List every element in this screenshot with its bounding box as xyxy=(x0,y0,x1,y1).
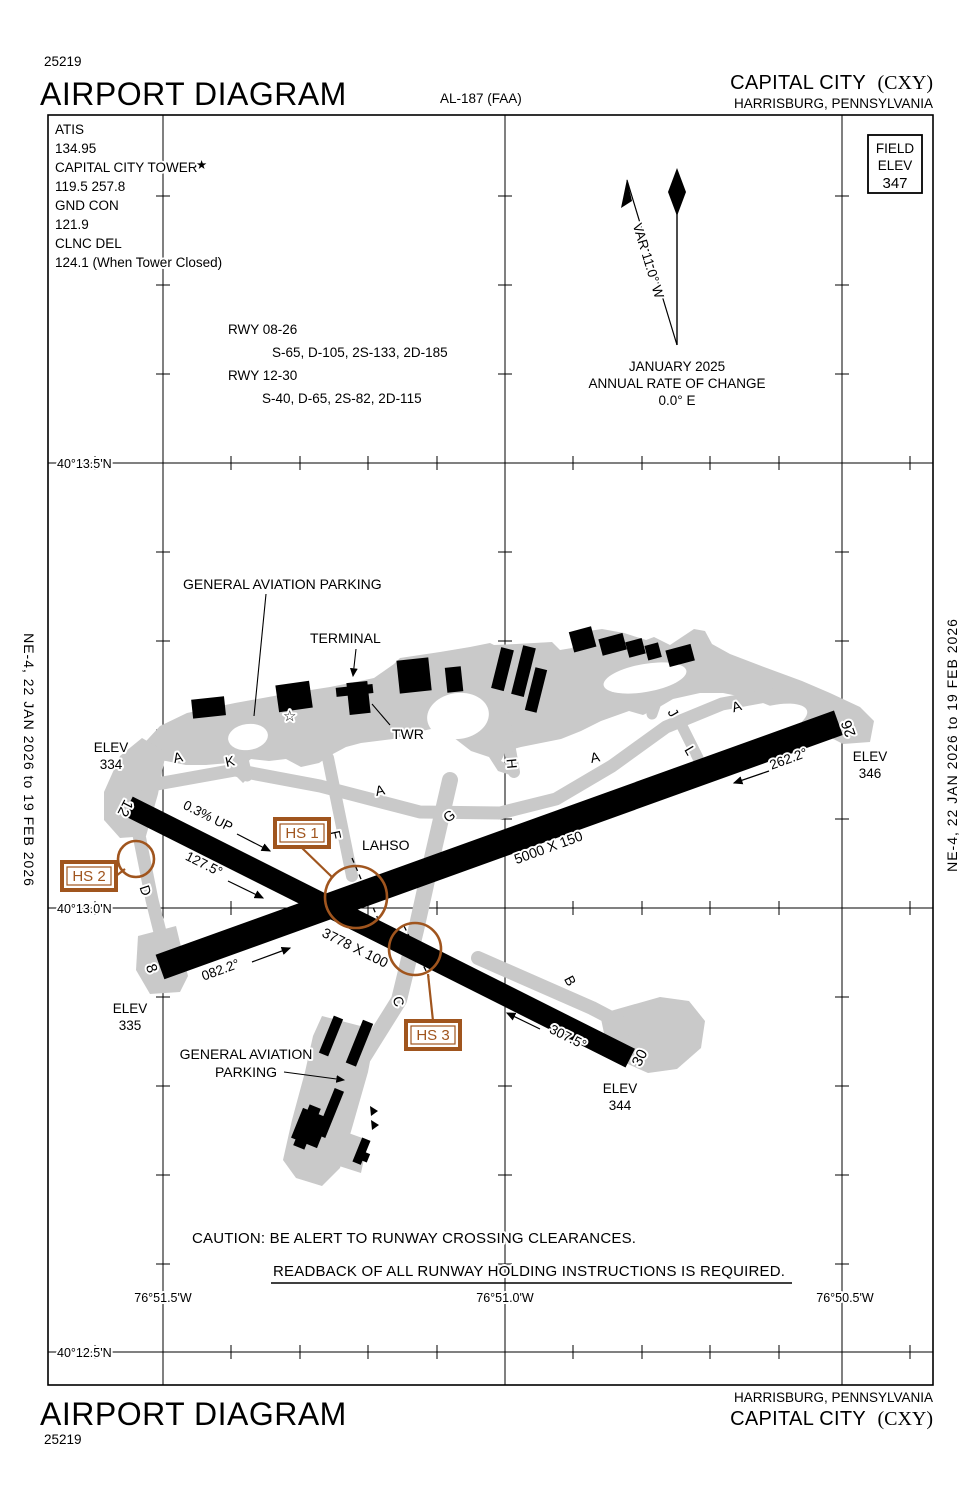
footer-airport-code: (CXY) xyxy=(877,1408,933,1430)
tower-frequencies: 119.5 257.8 xyxy=(55,179,125,194)
margin-note-left: NE-4, 22 JAN 2026 to 19 FEB 2026 xyxy=(21,633,37,887)
tower-star-icon: ★ xyxy=(196,158,207,172)
margin-note-right: NE-4, 22 JAN 2026 to 19 FEB 2026 xyxy=(944,618,960,872)
footer-page-code: 25219 xyxy=(44,1432,82,1447)
runway-data-block: RWY 08-26 S-65, D-105, 2S-133, 2D-185 RW… xyxy=(228,322,448,406)
terminal-arrow xyxy=(353,649,356,676)
longitude-label-1: 76°51.5'W xyxy=(134,1291,192,1305)
small-aircraft-icon xyxy=(371,1120,379,1130)
airport-diagram-chart: 25219 AIRPORT DIAGRAM AL-187 (FAA) CAPIT… xyxy=(0,0,978,1500)
airport-city: HARRISBURG, PENNSYLVANIA xyxy=(734,96,933,111)
elev-30-value: 344 xyxy=(609,1098,632,1113)
caution-line2: READBACK OF ALL RUNWAY HOLDING INSTRUCTI… xyxy=(273,1263,785,1280)
tower-label: CAPITAL CITY TOWER xyxy=(55,160,198,175)
field-elev-line1: FIELD xyxy=(876,141,915,156)
chart-id: AL-187 (FAA) xyxy=(440,91,522,106)
taxiway-a-label: A xyxy=(374,781,387,799)
taxiway-b-label: B xyxy=(561,973,580,989)
elev-8-label: ELEV xyxy=(113,1001,148,1016)
building xyxy=(396,657,431,693)
beacon-star-icon: ☆ xyxy=(283,708,296,725)
atis-frequency: 134.95 xyxy=(55,141,96,156)
rwy-1230-strength: S-40, D-65, 2S-82, 2D-115 xyxy=(262,391,422,406)
rwy-slope-arrow xyxy=(237,834,270,851)
page-title: AIRPORT DIAGRAM xyxy=(40,76,347,112)
terminal-label: TERMINAL xyxy=(310,630,381,646)
latitude-label-3: 40°12.5'N xyxy=(57,1346,112,1360)
building xyxy=(191,696,226,718)
annual-rate-label: ANNUAL RATE OF CHANGE xyxy=(588,376,765,391)
elev-8-value: 335 xyxy=(119,1018,142,1033)
rwy-0826-label: RWY 08-26 xyxy=(228,322,297,337)
longitude-label-3: 76°50.5'W xyxy=(816,1291,874,1305)
ga-parking-top-leader xyxy=(254,594,266,716)
airport-name: CAPITAL CITY xyxy=(730,72,866,94)
taxiway-h-label: H xyxy=(504,758,521,769)
rwy-0826-strength: S-65, D-105, 2S-133, 2D-185 xyxy=(272,345,448,360)
field-elev-value: 347 xyxy=(882,175,907,192)
ground-frequency: 121.9 xyxy=(55,217,89,232)
building xyxy=(445,666,464,693)
twr-label: TWR xyxy=(392,726,424,742)
footer-title: AIRPORT DIAGRAM xyxy=(40,1396,347,1432)
footer-city: HARRISBURG, PENNSYLVANIA xyxy=(734,1390,933,1405)
rwy-08-heading-arrow xyxy=(252,948,290,962)
longitude-label-2: 76°51.0'W xyxy=(476,1291,534,1305)
hot-spot-1-label: HS 1 xyxy=(285,825,318,842)
variation-month: JANUARY 2025 xyxy=(629,359,725,374)
taxiway-f-path xyxy=(328,758,352,876)
chart-page-code: 25219 xyxy=(44,54,82,69)
clearance-label: CLNC DEL xyxy=(55,236,122,251)
rwy-1230-label: RWY 12-30 xyxy=(228,368,297,383)
field-elev-line2: ELEV xyxy=(878,158,913,173)
airport-code: (CXY) xyxy=(877,72,933,94)
elev-12-label: ELEV xyxy=(94,740,129,755)
magnetic-north-barb-icon xyxy=(621,179,632,208)
comm-frequencies-block: ATIS 134.95 CAPITAL CITY TOWER ★ 119.5 2… xyxy=(55,122,222,270)
rwy-12-heading-arrow xyxy=(228,881,263,898)
taxiway-a-label: A xyxy=(589,748,602,766)
elev-30-label: ELEV xyxy=(603,1081,638,1096)
elev-26-value: 346 xyxy=(859,766,882,781)
small-aircraft-icon xyxy=(370,1106,378,1116)
variation-label: VAR 11.0° W xyxy=(630,221,667,300)
ground-label: GND CON xyxy=(55,198,119,213)
latitude-label-2: 40°13.0'N xyxy=(57,902,112,916)
tower-building xyxy=(346,681,370,715)
atis-label: ATIS xyxy=(55,122,84,137)
ga-parking-bottom-line1: GENERAL AVIATION xyxy=(180,1046,313,1062)
ga-parking-top-label: GENERAL AVIATION PARKING xyxy=(183,576,382,592)
hot-spot-3-leader xyxy=(428,974,433,1021)
true-north-arrowhead-icon xyxy=(668,168,686,216)
caution-line1: CAUTION: BE ALERT TO RUNWAY CROSSING CLE… xyxy=(192,1230,636,1247)
clearance-frequency: 124.1 (When Tower Closed) xyxy=(55,255,222,270)
hot-spot-3-label: HS 3 xyxy=(416,1027,449,1044)
ga-parking-bottom-line2: PARKING xyxy=(215,1064,277,1080)
lahso-label: LAHSO xyxy=(362,837,410,853)
footer-airport-name: CAPITAL CITY xyxy=(730,1408,866,1430)
hot-spot-2-box: HS 2 xyxy=(62,862,116,890)
field-elev-box: FIELD ELEV 347 xyxy=(868,135,922,193)
hot-spot-1-leader xyxy=(301,847,332,877)
annual-rate-value: 0.0° E xyxy=(659,393,696,408)
north-variation-arrows: VAR 11.0° W JANUARY 2025 ANNUAL RATE OF … xyxy=(588,168,765,408)
hot-spot-2-label: HS 2 xyxy=(72,868,105,885)
rwy-26-heading-arrow xyxy=(734,771,769,783)
elev-26-label: ELEV xyxy=(853,749,888,764)
latitude-label-1: 40°13.5'N xyxy=(57,457,112,471)
airport-diagram-page: 25219 AIRPORT DIAGRAM AL-187 (FAA) CAPIT… xyxy=(0,0,978,1500)
elev-12-value: 334 xyxy=(100,757,123,772)
hot-spot-3-box: HS 3 xyxy=(406,1021,460,1049)
hot-spot-1-box: HS 1 xyxy=(275,819,329,847)
